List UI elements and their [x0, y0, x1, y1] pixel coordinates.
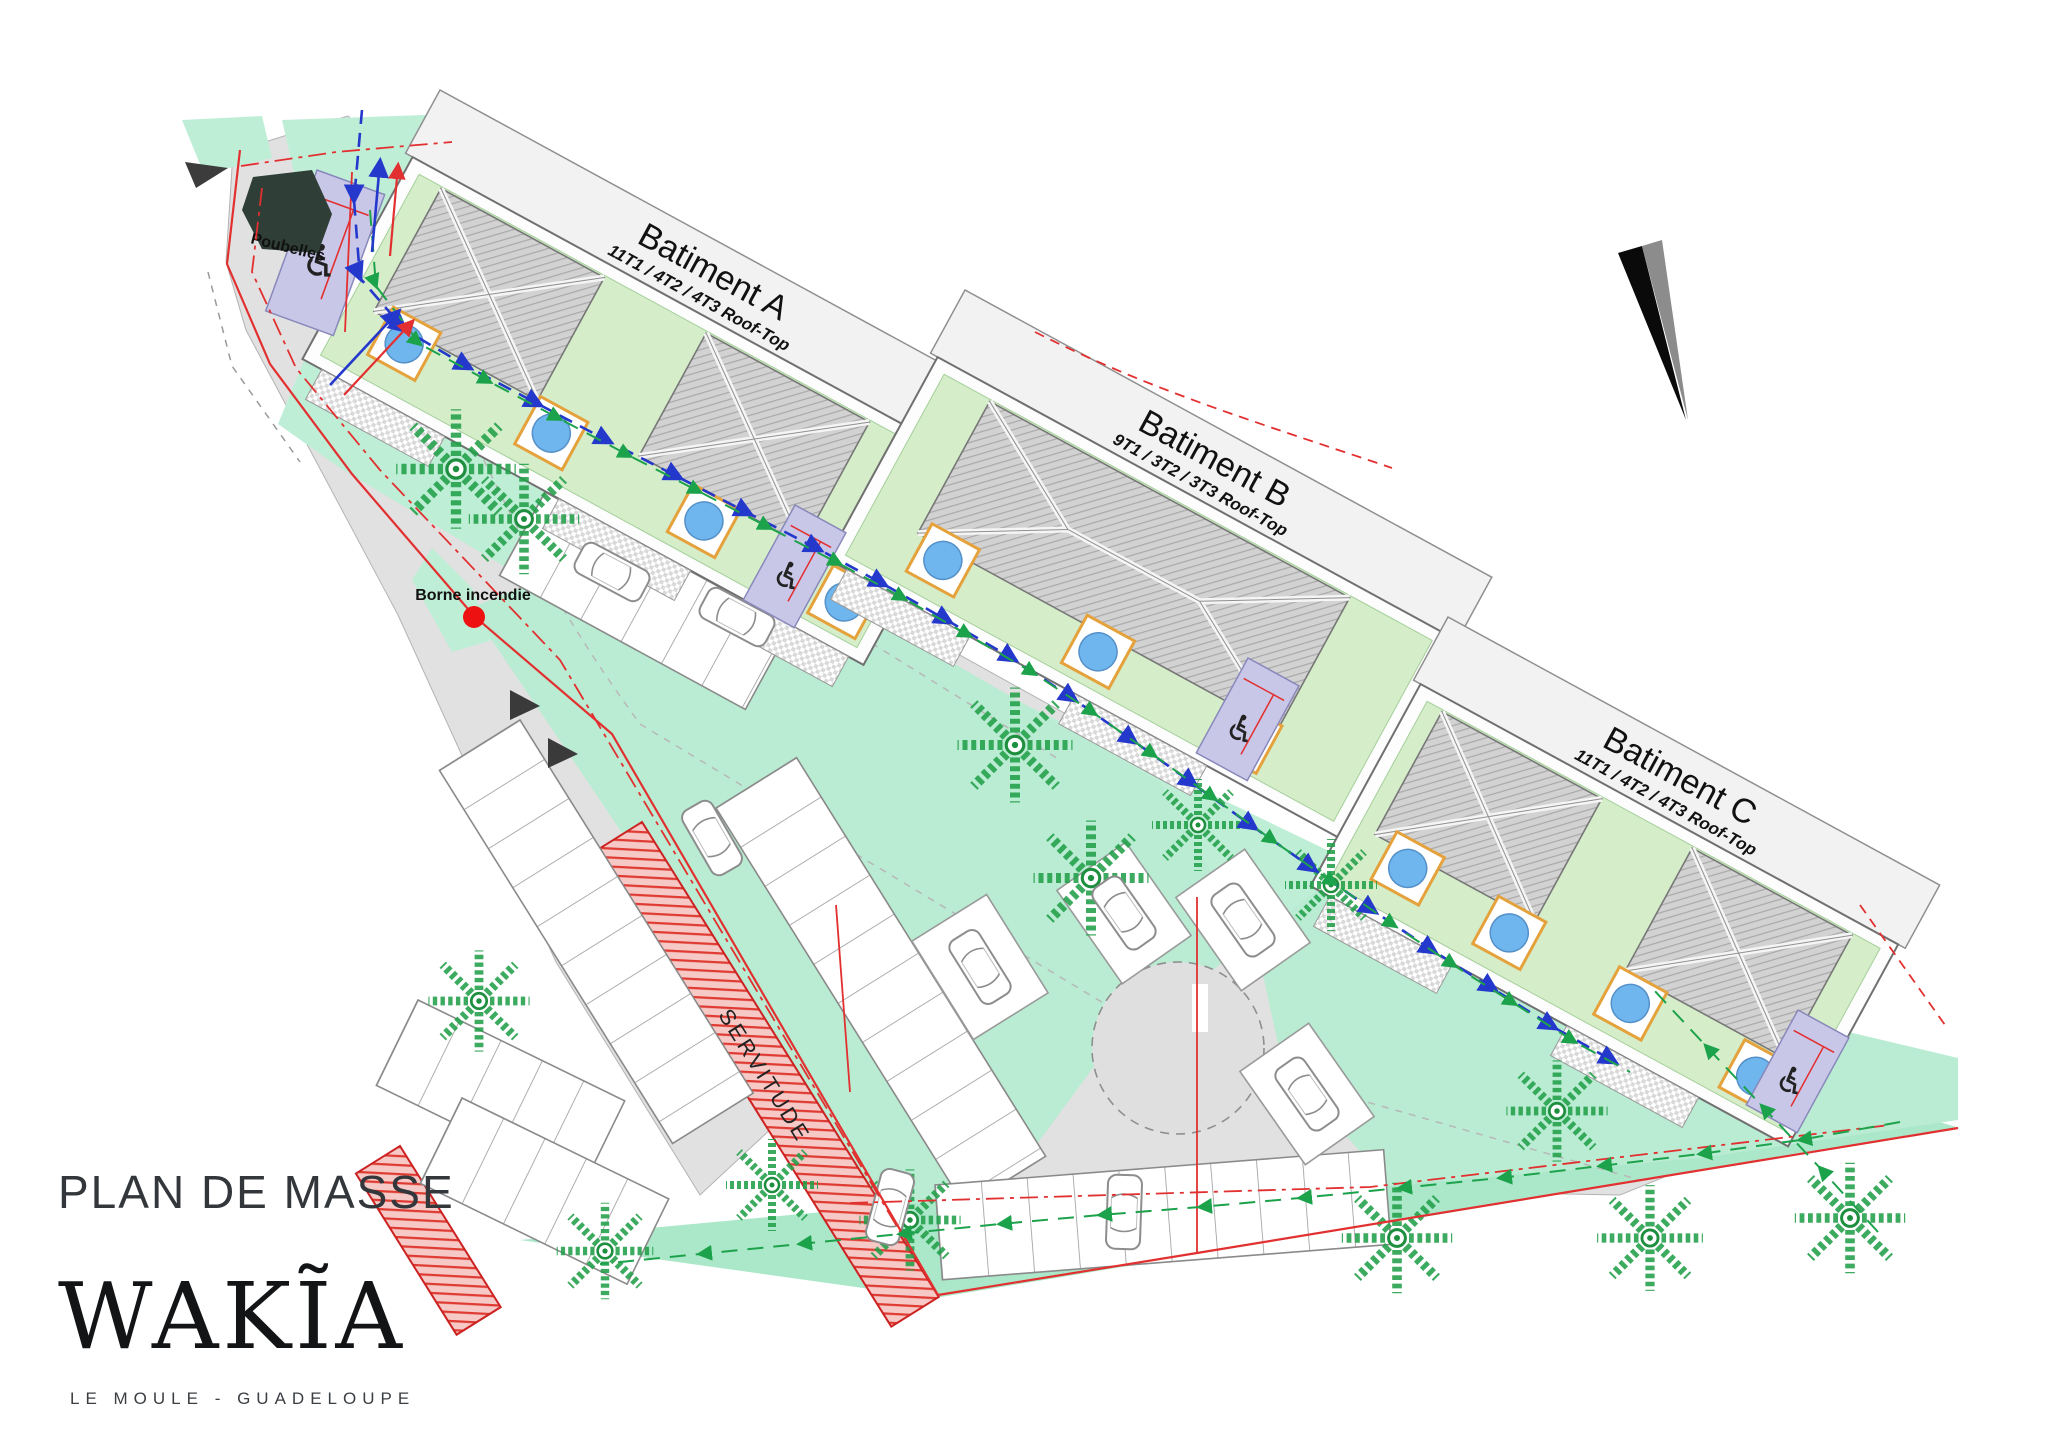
- project-logo: WAKĨA: [58, 1271, 478, 1363]
- page-title: PLAN DE MASSE: [58, 1165, 478, 1219]
- title-block: PLAN DE MASSE WAKĨA LE MOULE - GUADELOUP…: [58, 1165, 478, 1409]
- tree-icon: [958, 688, 1073, 803]
- tree-icon: [396, 409, 516, 529]
- roundabout: [1092, 962, 1264, 1134]
- tree-icon: [1506, 1060, 1607, 1161]
- tree-icon: [1285, 839, 1377, 931]
- site-plan-page: SERVITUDE: [0, 0, 2048, 1449]
- tree-icon: [1152, 779, 1244, 871]
- tree-icon: [557, 1203, 654, 1300]
- fire-hydrant-label: Borne incendie: [415, 587, 531, 604]
- tree-icon: [469, 464, 579, 574]
- tree-icon: [726, 1139, 818, 1231]
- tree-icon: [428, 950, 529, 1051]
- project-location: LE MOULE - GUADELOUPE: [70, 1389, 478, 1409]
- tree-icon: [1597, 1185, 1703, 1291]
- fire-hydrant-icon: [463, 606, 485, 628]
- tree-icon: [1342, 1183, 1452, 1293]
- north-arrow-icon: [1618, 240, 1688, 420]
- tree-icon: [1795, 1163, 1905, 1273]
